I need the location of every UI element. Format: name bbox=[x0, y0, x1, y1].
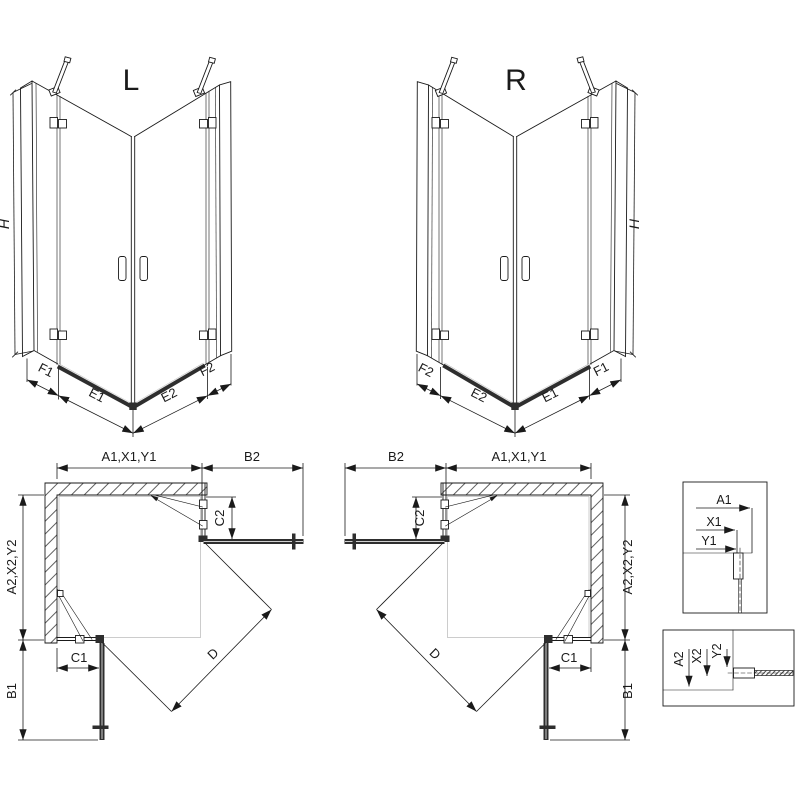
wall-hatch-right-plan bbox=[441, 483, 603, 643]
dim-label-c2: C2 bbox=[212, 510, 227, 527]
dim-label-b2: B2 bbox=[388, 449, 404, 464]
dim-label-x2: X2 bbox=[690, 648, 704, 663]
dim-label-y1: Y1 bbox=[701, 534, 716, 548]
dim-label-e1: E1 bbox=[539, 385, 560, 406]
dim-label-d: D bbox=[204, 645, 221, 662]
isometric-view-r bbox=[416, 81, 638, 437]
dim-label-x1: X1 bbox=[706, 515, 721, 529]
dim-label-c1: C1 bbox=[561, 650, 578, 665]
view-title-l: L bbox=[123, 64, 140, 97]
dim-label-h: H bbox=[626, 218, 642, 229]
dim-label-f1: F1 bbox=[36, 360, 56, 380]
dim-label-c1: C1 bbox=[71, 650, 88, 665]
plan-view-l bbox=[18, 463, 304, 740]
dim-label-b1: B1 bbox=[620, 683, 635, 699]
support-bar bbox=[435, 57, 457, 96]
view-title-r: R bbox=[505, 64, 527, 97]
isometric-view-l bbox=[10, 81, 232, 437]
wall-hatch-left-plan bbox=[45, 483, 207, 643]
detail-box-wall-profile-bottom bbox=[663, 630, 794, 706]
dim-label-a1: A1 bbox=[716, 493, 731, 507]
diagram-svg: L H F1 E1 E2 F2 R H F2 E2 E1 F1 A1,X1,Y1… bbox=[0, 0, 800, 800]
dim-label-f2: F2 bbox=[197, 359, 217, 379]
support-bar bbox=[49, 57, 71, 96]
dim-label-a2x2y2: A2,X2,Y2 bbox=[4, 540, 19, 595]
dim-label-h: H bbox=[0, 218, 12, 229]
dim-label-a2x2y2: A2,X2,Y2 bbox=[620, 540, 635, 595]
wall-profile bbox=[734, 553, 744, 579]
plan-view-r bbox=[345, 463, 631, 740]
dim-label-a1x1y1: A1,X1,Y1 bbox=[492, 449, 547, 464]
shower-enclosure-technical-diagram: L H F1 E1 E2 F2 R H F2 E2 E1 F1 A1,X1,Y1… bbox=[0, 0, 800, 800]
dim-label-f2: F2 bbox=[416, 360, 436, 380]
dim-label-d: D bbox=[427, 645, 444, 662]
dim-label-y2: Y2 bbox=[710, 643, 724, 658]
support-bar bbox=[193, 57, 215, 96]
dim-label-b2: B2 bbox=[244, 449, 260, 464]
dim-label-a2: A2 bbox=[672, 651, 686, 666]
glass-panel-section bbox=[755, 671, 794, 676]
dim-label-e1: E1 bbox=[87, 385, 108, 406]
dim-label-c2: C2 bbox=[412, 510, 427, 527]
support-bar bbox=[577, 57, 599, 96]
dim-label-a1x1y1: A1,X1,Y1 bbox=[102, 449, 157, 464]
dim-label-b1: B1 bbox=[4, 683, 19, 699]
